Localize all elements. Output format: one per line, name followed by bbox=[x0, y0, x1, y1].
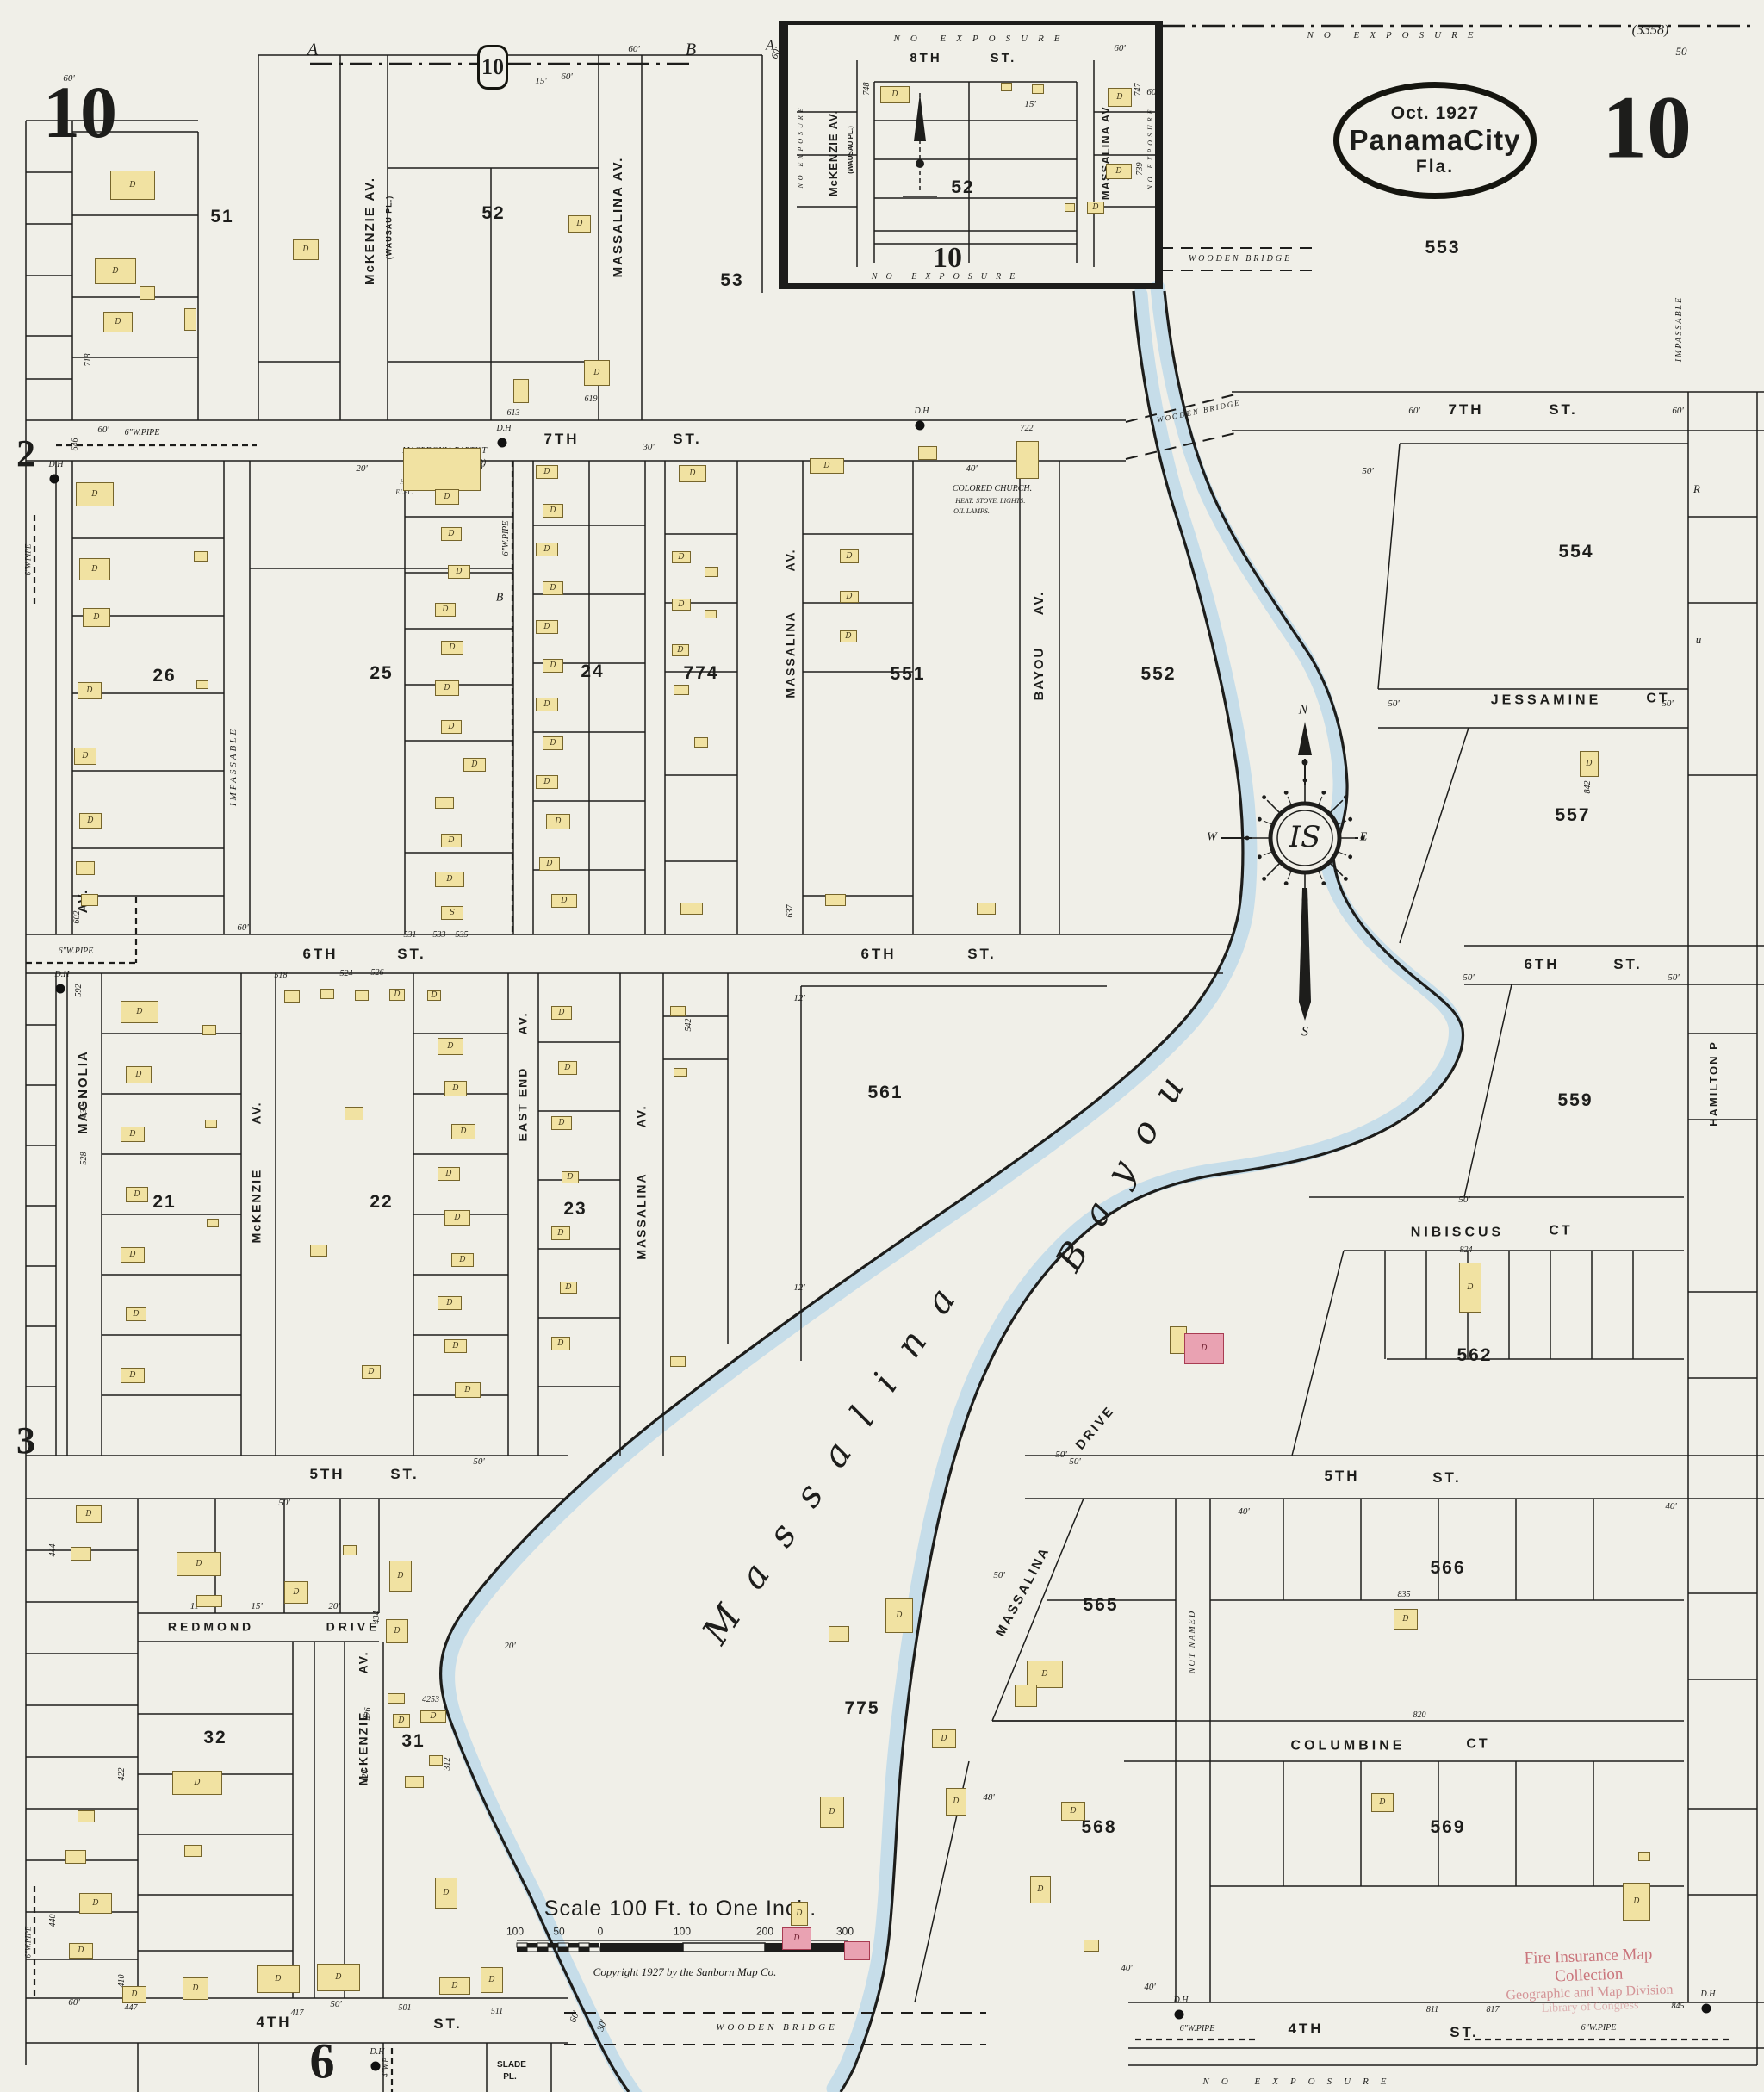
building-dwelling bbox=[977, 903, 996, 915]
map-note-label: NO EXPOSURE bbox=[893, 34, 1070, 45]
building-dwelling bbox=[674, 1068, 687, 1077]
block-number: 25 bbox=[370, 664, 393, 683]
dimension-label: 15' bbox=[1024, 100, 1035, 110]
map-note-label: 6"W.PIPE bbox=[1180, 2025, 1215, 2034]
address-label: 592 bbox=[75, 984, 84, 997]
address-label: 424 bbox=[362, 1770, 371, 1783]
building-dwelling: D bbox=[1030, 1876, 1051, 1903]
block-number: 562 bbox=[1457, 1346, 1492, 1365]
street-label: 7TH bbox=[1448, 402, 1483, 418]
collection-stamp: Fire Insurance Map Collection Geographic… bbox=[1500, 1944, 1678, 2017]
scale-tick-label: 200 bbox=[756, 1927, 773, 1938]
building-dwelling bbox=[1032, 84, 1044, 94]
street-label: ST. bbox=[1613, 957, 1643, 972]
building-dwelling: D bbox=[427, 990, 441, 1001]
map-note-label: OIL LAMPS. bbox=[953, 508, 990, 515]
building-dwelling: D bbox=[672, 644, 689, 656]
building-dwelling bbox=[76, 861, 95, 875]
building-dwelling bbox=[403, 448, 481, 491]
building-dwelling: D bbox=[386, 1619, 408, 1643]
building-dwelling: D bbox=[1371, 1793, 1394, 1812]
dimension-label: 20' bbox=[356, 464, 367, 475]
building-dwelling bbox=[184, 1845, 202, 1857]
address-label: 535 bbox=[456, 931, 469, 940]
address-label: 447 bbox=[125, 2004, 138, 2014]
dimension-label: 60' bbox=[1114, 44, 1125, 54]
building-dwelling: D bbox=[78, 682, 102, 699]
building-dwelling bbox=[81, 894, 98, 906]
building-dwelling: D bbox=[121, 1001, 158, 1023]
block-number: 52 bbox=[951, 178, 974, 197]
building-dwelling bbox=[405, 1776, 424, 1788]
building-dwelling: D bbox=[389, 1561, 412, 1592]
map-note-label: B bbox=[496, 593, 504, 605]
street-label: AV. bbox=[636, 1104, 649, 1127]
address-label: 613 bbox=[507, 409, 520, 419]
block-number: 774 bbox=[683, 664, 718, 683]
building-dwelling: D bbox=[546, 814, 570, 829]
building-dwelling: D bbox=[121, 1247, 145, 1263]
building-dwelling bbox=[694, 737, 708, 748]
building-dwelling: D bbox=[840, 591, 859, 603]
building-dwelling: D bbox=[568, 215, 591, 233]
building-dwelling: D bbox=[1623, 1883, 1650, 1921]
street-label: HAMILTON P bbox=[1708, 1040, 1720, 1127]
sanborn-map-sheet[interactable]: Oct. 1927 PanamaCity Fla. 10 Scale 100 F… bbox=[0, 0, 1764, 2092]
building-dwelling bbox=[284, 990, 300, 1003]
dimension-label: 50' bbox=[1662, 699, 1673, 710]
building-dwelling: D bbox=[1394, 1609, 1418, 1630]
address-label: 528 bbox=[80, 1152, 90, 1165]
building-dwelling: D bbox=[880, 86, 910, 103]
building-dwelling: D bbox=[257, 1965, 300, 1993]
building-dwelling bbox=[194, 551, 208, 562]
building-dwelling: D bbox=[543, 504, 563, 518]
building-dwelling: D bbox=[444, 1339, 467, 1353]
building-dwelling bbox=[196, 680, 208, 689]
building-dwelling: D bbox=[183, 1977, 208, 2000]
building-dwelling: D bbox=[481, 1967, 503, 1993]
street-label: MASSALINA bbox=[636, 1172, 649, 1259]
street-label: (WAUSAU PL.) bbox=[385, 196, 393, 260]
building-dwelling bbox=[435, 797, 454, 809]
building-dwelling: D bbox=[441, 720, 462, 734]
address-label: 434 bbox=[373, 1611, 382, 1624]
building-dwelling: D bbox=[840, 630, 857, 642]
building-dwelling: D bbox=[83, 608, 110, 627]
map-note-label: B bbox=[686, 41, 696, 59]
sheet-number: 3 bbox=[16, 1421, 35, 1461]
street-label: (WAUSAU PL.) bbox=[848, 126, 854, 174]
building-dwelling: D bbox=[393, 1714, 410, 1728]
street-label: ST. bbox=[390, 1467, 419, 1482]
building-dwelling bbox=[78, 1810, 95, 1822]
street-label: 5TH bbox=[1324, 1468, 1359, 1484]
hydrant-dot bbox=[50, 475, 59, 484]
address-label: 422 bbox=[118, 1768, 127, 1781]
map-geometry bbox=[0, 0, 1764, 2092]
building-dwelling: D bbox=[441, 641, 463, 655]
building-dwelling: D bbox=[438, 1167, 460, 1181]
address-label: 824 bbox=[1460, 1246, 1473, 1256]
dimension-label: 60' bbox=[561, 72, 572, 83]
building-dwelling: D bbox=[435, 1878, 457, 1909]
building-dwelling: D bbox=[536, 465, 558, 479]
building-pink: D bbox=[1184, 1333, 1224, 1364]
building-dwelling bbox=[140, 286, 155, 300]
dimension-label: 12' bbox=[793, 994, 804, 1004]
building-dwelling bbox=[205, 1120, 217, 1128]
street-label: ST. bbox=[991, 52, 1017, 65]
building-dwelling: D bbox=[76, 482, 114, 506]
map-note-label: NO EXPOSURE bbox=[1202, 2077, 1398, 2088]
dimension-label: 50' bbox=[993, 1571, 1004, 1581]
hydrant-label: D.H bbox=[49, 461, 64, 470]
address-label: 312 bbox=[444, 1758, 453, 1771]
street-label: AV. bbox=[357, 1650, 370, 1673]
address-label: 646 bbox=[71, 438, 81, 451]
block-number: 561 bbox=[867, 1083, 903, 1102]
matchline-sheet-marker: 10 bbox=[477, 45, 508, 90]
street-label: COLUMBINE bbox=[1291, 1740, 1406, 1754]
building-dwelling bbox=[918, 446, 937, 460]
address-label: 426 bbox=[364, 1708, 374, 1721]
compass-monogram: IS bbox=[1289, 823, 1321, 854]
hydrant-dot bbox=[1702, 2004, 1711, 2014]
building-dwelling: D bbox=[560, 1282, 577, 1294]
address-label: 811 bbox=[1426, 2006, 1438, 2015]
street-label: MASSALINA AV. bbox=[1100, 103, 1112, 200]
block-number: 554 bbox=[1558, 543, 1593, 562]
building-dwelling: D bbox=[126, 1187, 148, 1202]
street-label: ST. bbox=[967, 947, 997, 962]
building-dwelling: D bbox=[444, 1081, 467, 1096]
dimension-label: 50' bbox=[330, 2000, 341, 2010]
hydrant-label: D.H bbox=[370, 2048, 385, 2058]
dimension-label: 15' bbox=[251, 1602, 262, 1612]
scale-tick-label: 0 bbox=[598, 1927, 604, 1938]
building-dwelling: D bbox=[810, 458, 844, 474]
block-number: 51 bbox=[210, 208, 233, 227]
block-number: 566 bbox=[1430, 1559, 1465, 1578]
dimension-label: 20' bbox=[504, 1642, 515, 1652]
building-dwelling bbox=[310, 1245, 327, 1257]
address-label: 748 bbox=[863, 83, 873, 96]
building-dwelling: D bbox=[584, 360, 610, 386]
street-label: PL. bbox=[503, 2073, 517, 2083]
building-dwelling bbox=[345, 1107, 363, 1120]
hydrant-label: D.H bbox=[1701, 1990, 1716, 2000]
hydrant-label: D.H bbox=[915, 407, 929, 417]
building-dwelling: D bbox=[293, 239, 319, 260]
dimension-label: 50' bbox=[1388, 699, 1399, 710]
dimension-label: 40' bbox=[1665, 1502, 1676, 1512]
compass-north-label: N bbox=[1299, 704, 1308, 718]
building-dwelling: D bbox=[1061, 1802, 1085, 1821]
address-label: 532 bbox=[80, 1105, 90, 1118]
sheet-number: 10 bbox=[1602, 80, 1692, 174]
block-number: 24 bbox=[581, 662, 604, 681]
building-dwelling: D bbox=[110, 171, 155, 200]
sheet-number: 10 bbox=[933, 243, 962, 274]
building-dwelling: D bbox=[121, 1127, 145, 1142]
building-dwelling: D bbox=[103, 312, 133, 332]
hydrant-dot bbox=[916, 421, 925, 431]
block-number: 557 bbox=[1555, 806, 1590, 825]
building-dwelling: D bbox=[543, 736, 563, 750]
compass-east-label: E bbox=[1360, 832, 1368, 845]
building-dwelling bbox=[207, 1219, 219, 1227]
building-dwelling: D bbox=[1106, 164, 1132, 179]
building-dwelling bbox=[71, 1547, 91, 1561]
sheet-number: 10 bbox=[43, 73, 117, 151]
scale-tick-label: 50 bbox=[553, 1927, 564, 1938]
map-note-label: A bbox=[307, 41, 318, 59]
building-dwelling bbox=[65, 1850, 86, 1864]
building-dwelling: D bbox=[451, 1124, 475, 1139]
building-dwelling: D bbox=[536, 620, 558, 634]
map-note-label: 4"W.P. bbox=[382, 2057, 389, 2077]
address-label: 440 bbox=[49, 1915, 59, 1927]
map-note-label: NO EXPOSURE bbox=[1147, 106, 1154, 189]
building-dwelling: D bbox=[551, 1116, 572, 1130]
building-dwelling: D bbox=[551, 1226, 570, 1240]
building-dwelling bbox=[196, 1595, 222, 1607]
building-dwelling bbox=[355, 990, 369, 1001]
building-dwelling: D bbox=[122, 1986, 146, 2003]
hydrant-label: D.H bbox=[497, 425, 512, 434]
address-label: 518 bbox=[275, 972, 288, 981]
building-dwelling bbox=[705, 567, 718, 577]
block-number: 552 bbox=[1140, 665, 1176, 684]
street-label: 6TH bbox=[302, 947, 338, 962]
building-dwelling: D bbox=[362, 1365, 381, 1379]
street-label: EAST END bbox=[517, 1067, 530, 1142]
building-pink: D bbox=[782, 1927, 811, 1950]
block-number: 22 bbox=[370, 1193, 393, 1212]
block-number: 31 bbox=[401, 1732, 425, 1751]
title-date: Oct. 1927 bbox=[1391, 103, 1479, 124]
dimension-label: 30' bbox=[643, 443, 654, 453]
street-label: McKENZIE AV. bbox=[363, 177, 377, 285]
street-label: AV. bbox=[785, 548, 798, 571]
building-dwelling: D bbox=[455, 1382, 481, 1398]
building-dwelling bbox=[1001, 83, 1012, 91]
building-dwelling: D bbox=[95, 258, 136, 284]
compass-west-label: W bbox=[1207, 832, 1217, 845]
street-label: AV. bbox=[251, 1101, 264, 1124]
building-dwelling bbox=[202, 1025, 216, 1035]
dimension-label: 50' bbox=[1069, 1457, 1080, 1468]
street-label: ST. bbox=[1450, 2025, 1479, 2040]
building-dwelling: D bbox=[420, 1710, 446, 1723]
map-note-label: 6"W.PIPE bbox=[1581, 2024, 1617, 2033]
building-dwelling: D bbox=[435, 872, 464, 887]
map-note-label: 50 bbox=[1676, 46, 1687, 58]
address-label: 718 bbox=[84, 354, 94, 367]
map-note-label: WOODEN BRIDGE bbox=[716, 2023, 838, 2033]
compass-south-label: S bbox=[1301, 1026, 1308, 1040]
dimension-label: 60' bbox=[97, 425, 109, 436]
title-city: PanamaCity bbox=[1350, 124, 1521, 157]
address-label: 722 bbox=[1021, 425, 1034, 434]
street-label: NIBISCUS bbox=[1411, 1226, 1504, 1241]
building-dwelling: D bbox=[438, 1296, 462, 1310]
building-dwelling: D bbox=[448, 565, 470, 579]
dimension-label: 40' bbox=[1144, 1983, 1155, 1993]
hydrant-dot bbox=[1175, 2010, 1184, 2020]
street-label: ST. bbox=[433, 2016, 463, 2032]
building-dwelling: D bbox=[558, 1061, 577, 1075]
sheet-number: 2 bbox=[16, 434, 35, 474]
dimension-label: 40' bbox=[1121, 1964, 1132, 1974]
address-label: 747 bbox=[1134, 84, 1144, 96]
building-dwelling: D bbox=[1580, 751, 1599, 777]
street-label: 8TH bbox=[910, 52, 941, 65]
scale-tick-label: 100 bbox=[674, 1927, 691, 1938]
building-dwelling: D bbox=[536, 698, 558, 711]
address-label: 524 bbox=[340, 970, 353, 979]
building-dwelling: D bbox=[79, 1893, 112, 1914]
building-dwelling: D bbox=[543, 659, 563, 673]
building-dwelling bbox=[680, 903, 703, 915]
building-dwelling: D bbox=[946, 1788, 966, 1816]
map-note-label: 6"W.PIPE bbox=[59, 947, 94, 957]
street-label: MASSALINA bbox=[785, 611, 798, 698]
address-label: 501 bbox=[399, 2004, 412, 2014]
building-dwelling bbox=[1015, 1685, 1037, 1707]
map-note-label: 6"W.PIPE bbox=[24, 544, 32, 576]
hydrant-dot bbox=[498, 438, 507, 448]
street-label: BAYOU bbox=[1033, 647, 1047, 701]
building-dwelling: D bbox=[441, 834, 462, 847]
dimension-label: 50' bbox=[1668, 973, 1679, 984]
building-dwelling bbox=[829, 1626, 849, 1642]
building-dwelling: D bbox=[177, 1552, 221, 1576]
map-note-label: COLORED CHURCH. bbox=[953, 485, 1032, 494]
address-label: 444 bbox=[49, 1544, 59, 1557]
block-number: 52 bbox=[481, 204, 505, 223]
street-label: JESSAMINE bbox=[1491, 694, 1601, 709]
building-dwelling: D bbox=[439, 1977, 470, 1995]
scale-tick-label: 300 bbox=[836, 1927, 854, 1938]
street-label: ST. bbox=[1432, 1470, 1462, 1486]
address-label: 526 bbox=[371, 969, 384, 978]
dimension-label: 50' bbox=[1458, 1195, 1469, 1206]
hydrant-label: D.H bbox=[55, 971, 70, 980]
address-label: 619 bbox=[585, 395, 598, 405]
street-label: CT bbox=[1549, 1225, 1572, 1239]
building-dwelling: D bbox=[317, 1964, 360, 1991]
block-number: 775 bbox=[844, 1699, 879, 1718]
building-dwelling: D bbox=[438, 1038, 463, 1055]
street-label: 4TH bbox=[256, 2014, 291, 2030]
street-label: AV. bbox=[517, 1011, 530, 1034]
street-label: MAGNOLIA bbox=[77, 1050, 90, 1134]
title-oval: Oct. 1927 PanamaCity Fla. bbox=[1333, 82, 1537, 199]
street-label: McKENZIE bbox=[251, 1169, 264, 1244]
address-label: 835 bbox=[1398, 1591, 1411, 1600]
block-number: 21 bbox=[152, 1193, 176, 1212]
dimension-label: 60' bbox=[1408, 407, 1419, 417]
dimension-label: 60' bbox=[237, 923, 248, 934]
map-note-label: NOT NAMED bbox=[1189, 1610, 1198, 1673]
building-dwelling bbox=[670, 1006, 686, 1016]
address-label: 739 bbox=[1136, 163, 1146, 176]
title-state: Fla. bbox=[1416, 157, 1454, 177]
dimension-label: 50' bbox=[1463, 973, 1474, 984]
dimension-label: 60' bbox=[68, 1998, 79, 2008]
street-label: SLADE bbox=[497, 2061, 526, 2070]
address-label: 602 bbox=[73, 911, 83, 924]
map-note-label: NO EXPOSURE bbox=[1307, 31, 1483, 41]
street-label: CT bbox=[1466, 1738, 1489, 1753]
dimension-label: 50' bbox=[278, 1499, 289, 1509]
building-dwelling: D bbox=[451, 1253, 474, 1267]
address-label: 542 bbox=[685, 1019, 694, 1032]
address-label: 533 bbox=[433, 931, 446, 940]
map-note-label: NO EXPOSURE bbox=[872, 273, 1023, 282]
building-dwelling: D bbox=[126, 1307, 146, 1321]
dimension-label: 50' bbox=[1362, 467, 1373, 477]
address-label: 511 bbox=[491, 2008, 503, 2017]
address-label: 820 bbox=[1413, 1711, 1426, 1721]
building-dwelling: D bbox=[1459, 1263, 1481, 1313]
map-note-label: IMPASSABLE bbox=[229, 727, 239, 806]
building-dwelling bbox=[184, 308, 196, 331]
building-dwelling: D bbox=[932, 1729, 956, 1748]
dimension-label: 60' bbox=[628, 45, 639, 55]
building-dwelling: D bbox=[672, 551, 691, 563]
building-dwelling bbox=[1065, 203, 1075, 212]
street-label: ST. bbox=[397, 947, 426, 962]
building-dwelling: D bbox=[76, 1505, 102, 1523]
street-label: ST. bbox=[673, 431, 702, 447]
map-note-label: u bbox=[1696, 634, 1702, 646]
building-dwelling: D bbox=[172, 1771, 222, 1795]
matchline-sheet-number: 10 bbox=[481, 54, 504, 80]
building-dwelling: D bbox=[284, 1581, 308, 1604]
building-dwelling bbox=[1084, 1940, 1099, 1952]
building-dwelling: D bbox=[551, 894, 577, 908]
block-number: 568 bbox=[1081, 1818, 1116, 1837]
building-dwelling bbox=[388, 1693, 405, 1704]
street-label: 6TH bbox=[1524, 957, 1559, 972]
block-number: 23 bbox=[563, 1200, 587, 1219]
building-dwelling bbox=[320, 989, 334, 999]
map-note-label: (3358) bbox=[1632, 24, 1669, 39]
building-dwelling bbox=[513, 379, 529, 403]
building-dwelling: D bbox=[441, 527, 462, 541]
building-dwelling: D bbox=[69, 1943, 93, 1959]
building-dwelling: D bbox=[121, 1368, 145, 1383]
street-label: MASSALINA AV. bbox=[612, 157, 625, 278]
address-label: 637 bbox=[786, 905, 796, 918]
building-dwelling: D bbox=[444, 1210, 470, 1226]
building-dwelling: D bbox=[536, 543, 558, 556]
building-dwelling: D bbox=[1087, 202, 1104, 214]
dimension-label: 40' bbox=[966, 464, 977, 475]
building-dwelling bbox=[343, 1545, 357, 1555]
block-number: 53 bbox=[720, 271, 743, 290]
building-dwelling: D bbox=[885, 1598, 913, 1633]
dimension-label: 12' bbox=[793, 1283, 804, 1294]
building-dwelling: D bbox=[543, 581, 563, 595]
building-dwelling: D bbox=[791, 1902, 808, 1926]
street-label: McKENZIE AV. bbox=[828, 110, 840, 196]
map-note-label: WOODEN BRIDGE bbox=[1189, 255, 1292, 264]
block-number: 26 bbox=[152, 667, 176, 686]
